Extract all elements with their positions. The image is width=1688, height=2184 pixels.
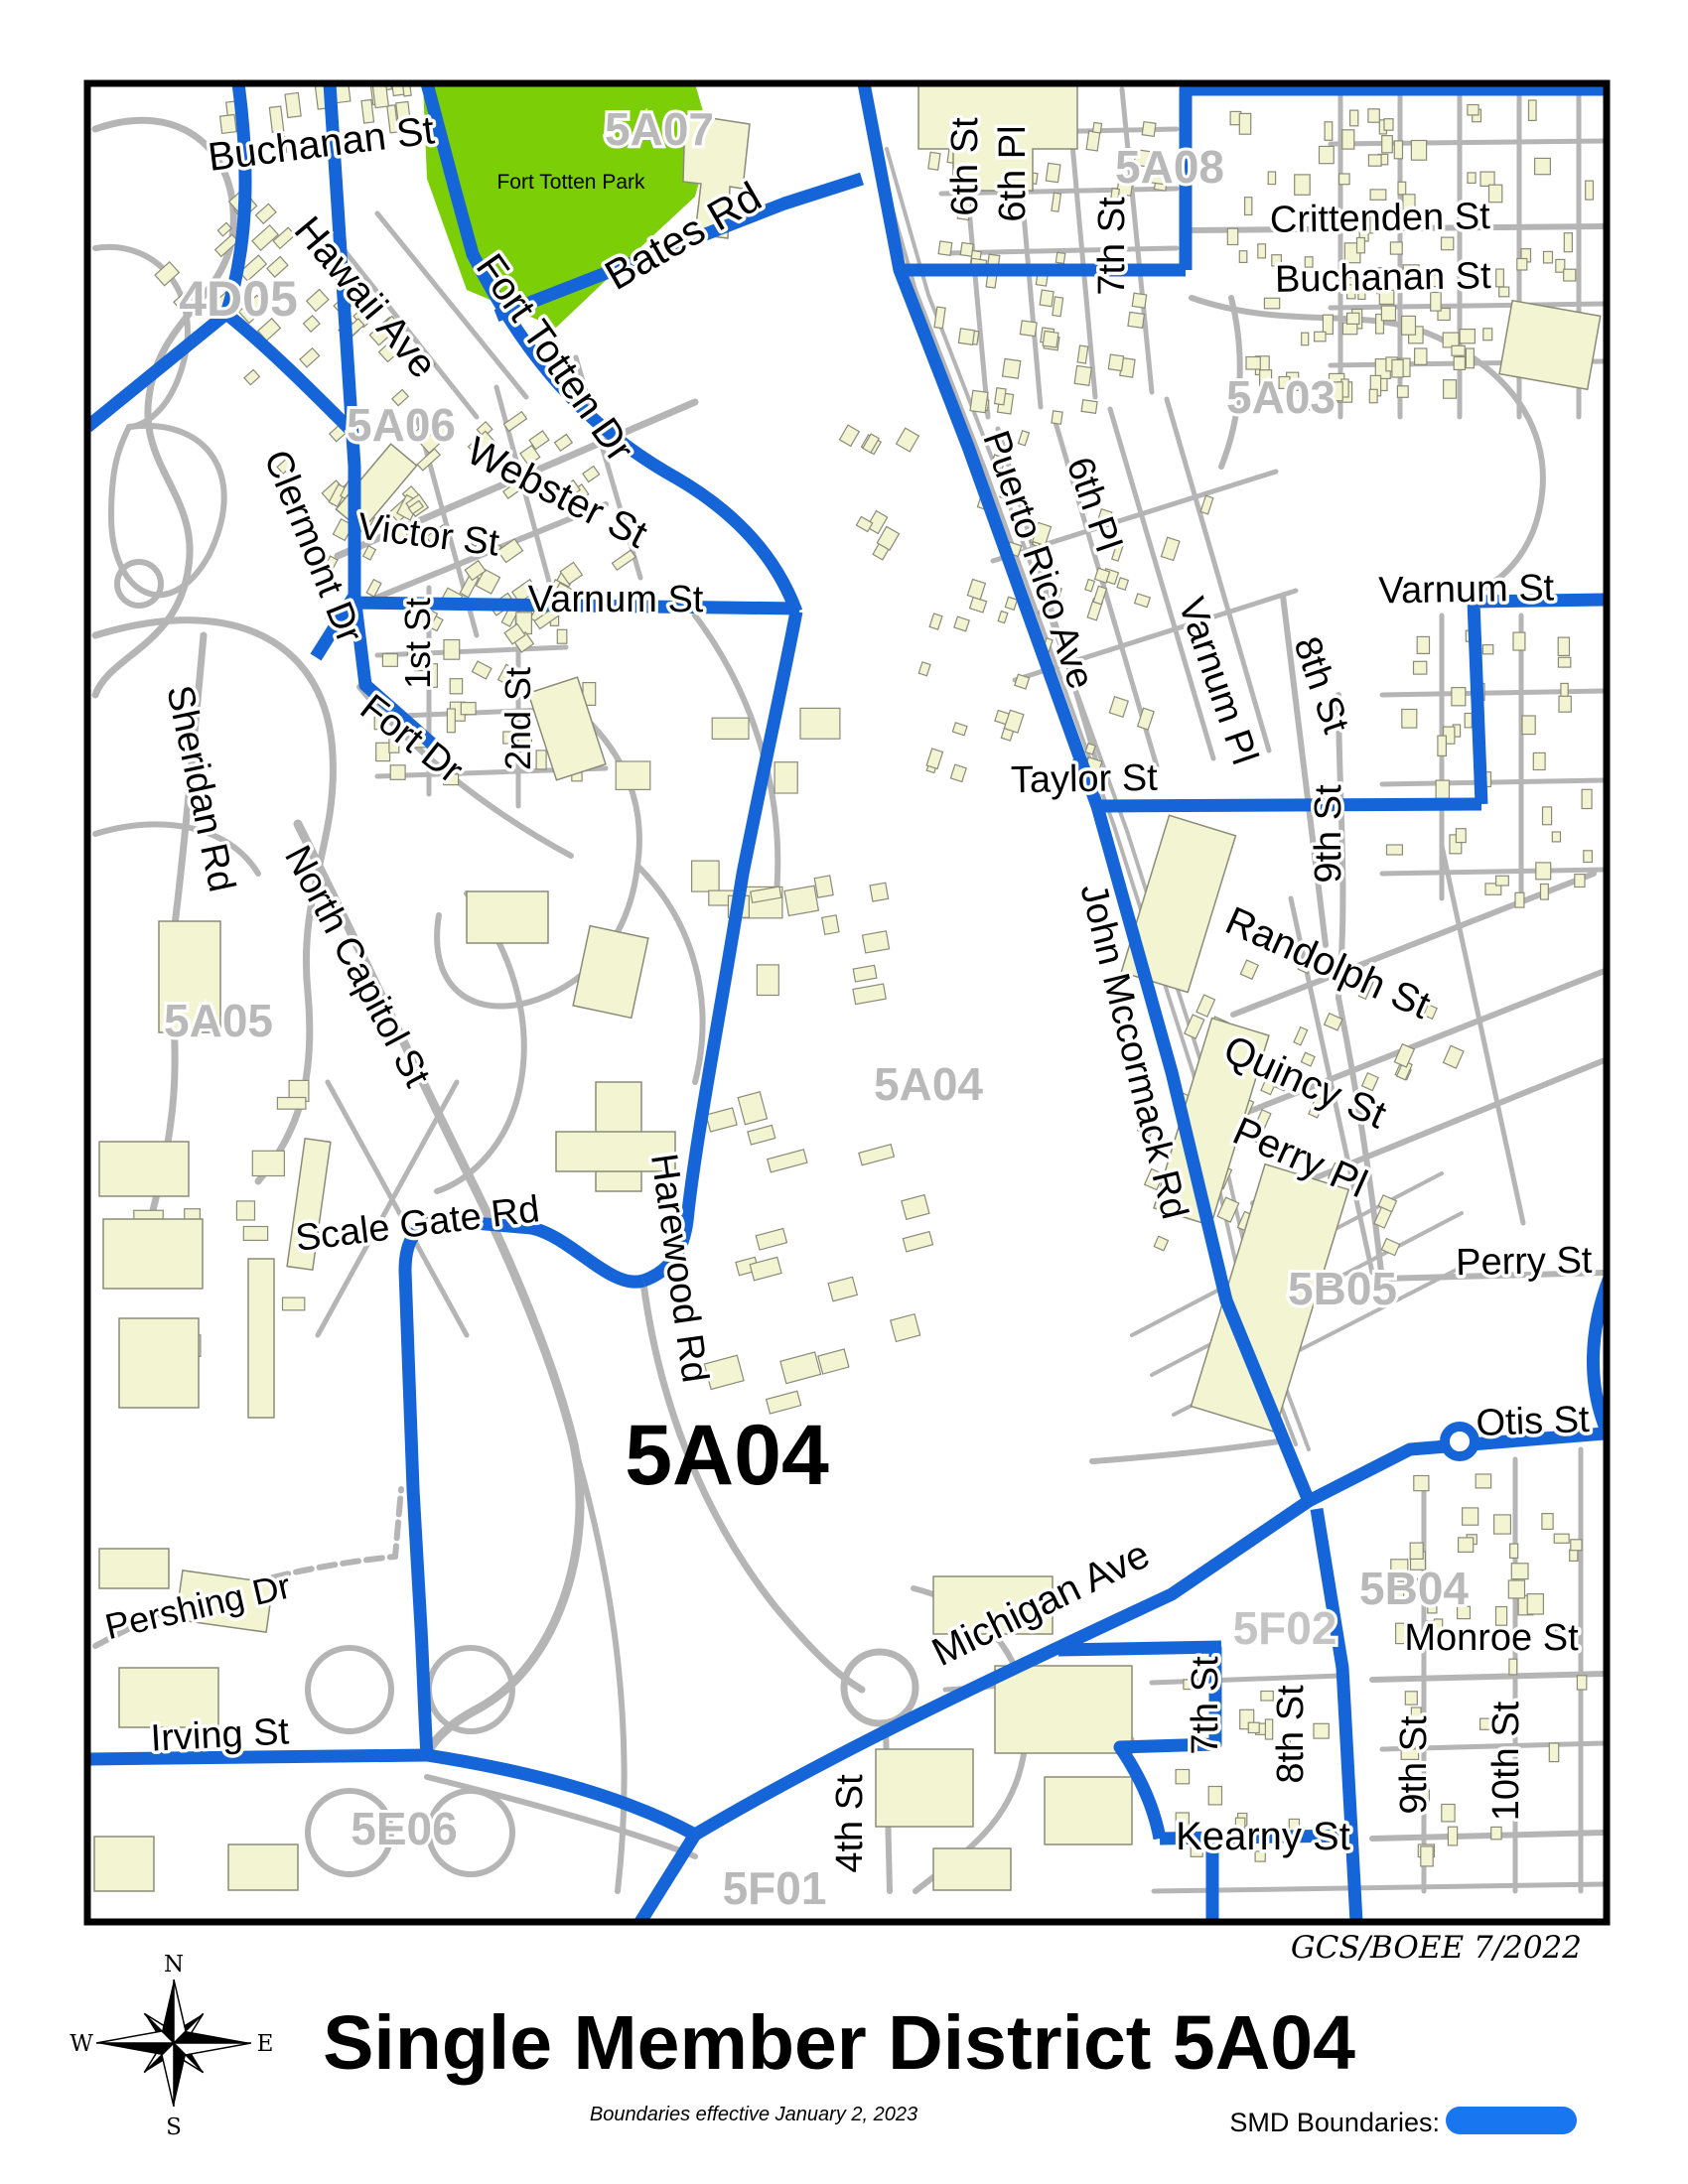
district-label-5f02: 5F02	[1233, 1602, 1337, 1654]
boundary-michigan-stub	[1058, 1647, 1221, 1650]
boundary-taylor-st	[1097, 804, 1481, 806]
boundary-irving-st	[87, 1755, 427, 1759]
street-label-otis-st: Otis St	[1476, 1399, 1591, 1444]
district-label-5a04-main: 5A04	[625, 1408, 829, 1503]
district-label-4d05: 4D05	[179, 271, 298, 327]
street-label-6th-pl-top: 6th Pl	[992, 125, 1034, 221]
legend: SMD Boundaries:	[1229, 2107, 1577, 2137]
street-label-6th-st-top: 6th St	[944, 117, 986, 216]
compass-rose-icon: N E S W	[70, 1952, 273, 2140]
otis-circle	[1445, 1427, 1475, 1456]
street-label-crittenden-st: Crittenden St	[1270, 196, 1491, 241]
street-label-4th-st: 4th St	[829, 1774, 871, 1873]
district-label-5a07: 5A07	[605, 103, 714, 155]
effective-date-note: Boundaries effective January 2, 2023	[590, 2104, 917, 2125]
district-label-5a04-small: 5A04	[874, 1058, 983, 1110]
district-label-5b04: 5B04	[1359, 1563, 1469, 1614]
compass-cardinal-points	[96, 1979, 251, 2107]
street-label-1st-st: 1st St	[397, 598, 438, 689]
street-label-sheridan-rd: Sheridan Rd	[158, 682, 242, 895]
boundary-hawaii-connector	[226, 314, 350, 429]
street-label-perry-st: Perry St	[1456, 1240, 1593, 1284]
street-label-kearny-st: Kearny St	[1176, 1815, 1350, 1858]
map-page: Buchanan St Hawaii Ave Fort Totten Dr Ba…	[0, 0, 1688, 2184]
boundary-varnum-east	[1474, 600, 1605, 804]
district-label-5e06: 5E06	[351, 1803, 457, 1854]
smd-map-canvas: Buchanan St Hawaii Ave Fort Totten Dr Ba…	[0, 0, 1688, 2184]
footer: GCS/BOEE 7/2022 N E S W	[70, 1930, 1582, 2140]
street-label-buchanan-ne: Buchanan St	[1275, 255, 1492, 301]
park-label: Fort Totten Park	[496, 171, 645, 194]
street-label-2nd-st: 2nd St	[497, 667, 538, 770]
street-label-7th-st-top: 7th St	[1091, 197, 1133, 296]
compass-s: S	[166, 2115, 182, 2140]
street-label-9th-st-n: 9th St	[1308, 784, 1349, 884]
street-label-monroe-st: Monroe St	[1404, 1617, 1579, 1659]
district-label-5a08: 5A08	[1115, 141, 1224, 193]
compass-w: W	[70, 2031, 93, 2057]
street-label-10th-st-s: 10th St	[1485, 1701, 1527, 1821]
district-label-5b05: 5B05	[1288, 1263, 1397, 1314]
district-label-5a06: 5A06	[347, 399, 456, 451]
compass-e: E	[257, 2031, 274, 2057]
legend-label: SMD Boundaries:	[1229, 2108, 1440, 2137]
boundary-8th-corridor	[1317, 1509, 1356, 1922]
street-label-victor-st: Victor St	[355, 506, 501, 565]
street-label-taylor-st: Taylor St	[1011, 757, 1159, 802]
street-label-9th-st-s: 9th St	[1393, 1715, 1435, 1815]
credit-text: GCS/BOEE 7/2022	[1291, 1930, 1582, 1966]
street-label-6th-pl-mid: 6th Pl	[1058, 452, 1129, 557]
street-label-irving-st: Irving St	[150, 1710, 291, 1759]
compass-n: N	[164, 1952, 184, 1978]
legend-smd-boundary-swatch	[1446, 2107, 1577, 2134]
page-title: Single Member District 5A04	[323, 2000, 1355, 2086]
street-label-north-capitol-st: North Capitol St	[276, 839, 438, 1094]
street-label-7th-st-s: 7th St	[1185, 1656, 1226, 1755]
district-label-5f01: 5F01	[723, 1862, 827, 1914]
street-label-varnum-e: Varnum St	[1378, 567, 1555, 612]
district-label-5a03: 5A03	[1226, 371, 1336, 423]
district-label-5a05: 5A05	[164, 995, 273, 1046]
street-label-8th-st-s: 8th St	[1270, 1685, 1312, 1784]
boundary-irving-bend	[427, 1755, 695, 1835]
street-label-varnum-w: Varnum St	[528, 579, 704, 620]
